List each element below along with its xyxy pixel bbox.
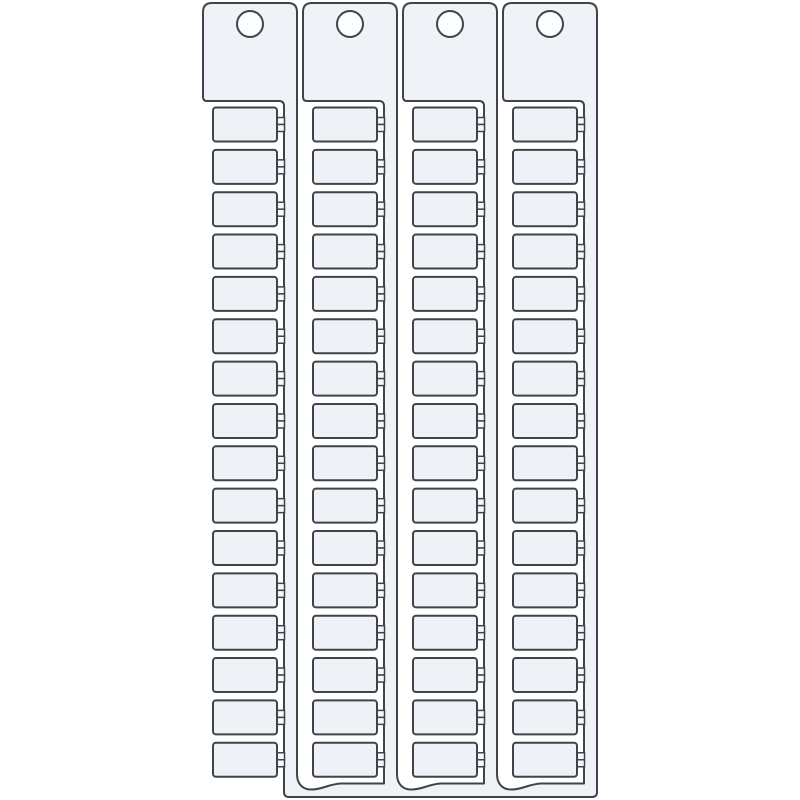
marker-tag [313, 150, 377, 184]
marker-tag [213, 573, 277, 607]
marker-tag [413, 573, 477, 607]
marker-tag [413, 616, 477, 650]
marker-tag [313, 489, 377, 523]
marker-tag [413, 743, 477, 777]
marker-tag [213, 658, 277, 692]
marker-tag [513, 362, 577, 396]
marker-tag [313, 277, 377, 311]
marker-tag [213, 150, 277, 184]
marker-tag [213, 235, 277, 269]
marker-tag [213, 531, 277, 565]
marker-tag [213, 192, 277, 226]
marker-tag [413, 531, 477, 565]
marker-strip-2 [313, 11, 385, 777]
marker-tag [413, 658, 477, 692]
marker-tag [313, 700, 377, 734]
marker-tag [313, 616, 377, 650]
marker-tag [513, 616, 577, 650]
marker-tag [313, 235, 377, 269]
marker-tag [213, 404, 277, 438]
marker-tag [513, 446, 577, 480]
marker-tag [213, 362, 277, 396]
marker-tag [313, 658, 377, 692]
hanger-hole [537, 11, 563, 37]
product-illustration [0, 0, 800, 800]
marker-tag [513, 404, 577, 438]
marker-tag [213, 489, 277, 523]
marker-tag [413, 192, 477, 226]
marker-tag [513, 235, 577, 269]
marker-tag [513, 319, 577, 353]
marker-tag [313, 362, 377, 396]
marker-strip-1 [213, 11, 285, 777]
marker-tag [513, 108, 577, 142]
marker-tag [313, 743, 377, 777]
marker-tag [413, 446, 477, 480]
marker-tag [213, 616, 277, 650]
marker-tag [313, 108, 377, 142]
marker-tag [413, 235, 477, 269]
marker-tag [513, 743, 577, 777]
marker-tag [313, 446, 377, 480]
hanger-hole [337, 11, 363, 37]
marker-tag [513, 489, 577, 523]
hanger-hole [237, 11, 263, 37]
marker-tag [413, 489, 477, 523]
marker-tag [413, 700, 477, 734]
marker-tag [213, 700, 277, 734]
marker-tag [313, 573, 377, 607]
hanger-hole [437, 11, 463, 37]
marker-strip-3 [413, 11, 485, 777]
marker-tag [513, 192, 577, 226]
marker-tag [213, 277, 277, 311]
marker-tag [513, 700, 577, 734]
marker-tag [213, 108, 277, 142]
marker-tag [413, 277, 477, 311]
marker-tag [413, 362, 477, 396]
marker-tag [213, 319, 277, 353]
marker-tag [513, 150, 577, 184]
terminal-marker-card-svg [0, 0, 800, 800]
marker-tag [513, 531, 577, 565]
marker-tag [413, 108, 477, 142]
marker-tag [313, 192, 377, 226]
marker-tag [313, 319, 377, 353]
marker-tag [313, 404, 377, 438]
marker-tag [213, 446, 277, 480]
marker-tag [413, 150, 477, 184]
marker-strip-4 [513, 11, 585, 777]
marker-tag [513, 658, 577, 692]
marker-tag [513, 573, 577, 607]
marker-tag [513, 277, 577, 311]
marker-tag [413, 404, 477, 438]
marker-tag [213, 743, 277, 777]
marker-tag [413, 319, 477, 353]
marker-tag [313, 531, 377, 565]
